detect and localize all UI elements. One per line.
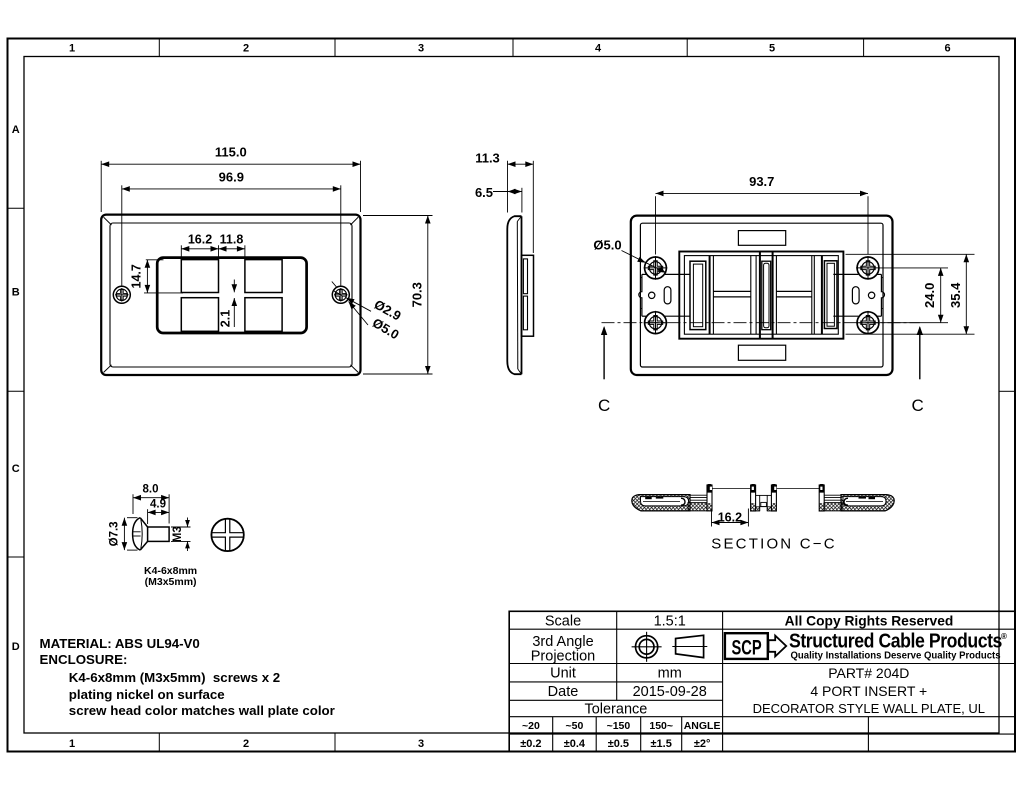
svg-text:®: ® bbox=[1001, 632, 1007, 641]
svg-text:1: 1 bbox=[69, 738, 75, 750]
svg-text:2.1: 2.1 bbox=[218, 310, 232, 327]
svg-text:Date: Date bbox=[548, 684, 579, 700]
svg-text:(M3x5mm): (M3x5mm) bbox=[145, 576, 197, 588]
svg-text:16.2: 16.2 bbox=[718, 511, 742, 525]
svg-text:~150: ~150 bbox=[607, 720, 631, 732]
svg-text:14.7: 14.7 bbox=[129, 264, 143, 288]
svg-text:±0.5: ±0.5 bbox=[608, 738, 629, 750]
svg-text:~20: ~20 bbox=[522, 720, 540, 732]
svg-text:4: 4 bbox=[595, 43, 602, 55]
svg-text:C: C bbox=[911, 396, 923, 415]
svg-text:4 PORT INSERT +: 4 PORT INSERT + bbox=[810, 683, 927, 699]
svg-text:2: 2 bbox=[243, 43, 249, 55]
svg-text:mm: mm bbox=[658, 666, 682, 682]
svg-text:DECORATOR STYLE WALL PLATE, UL: DECORATOR STYLE WALL PLATE, UL bbox=[753, 701, 985, 716]
svg-text:35.4: 35.4 bbox=[948, 282, 963, 308]
svg-text:A: A bbox=[12, 124, 20, 136]
svg-text:Tolerance: Tolerance bbox=[584, 701, 647, 717]
svg-text:B: B bbox=[12, 287, 20, 299]
svg-text:11.8: 11.8 bbox=[220, 232, 244, 246]
svg-text:±1.5: ±1.5 bbox=[651, 738, 672, 750]
svg-text:±0.2: ±0.2 bbox=[520, 738, 541, 750]
svg-text:16.2: 16.2 bbox=[188, 232, 212, 246]
svg-text:plating nickel on surface: plating nickel on surface bbox=[69, 687, 225, 702]
svg-text:3: 3 bbox=[418, 43, 424, 55]
svg-text:C: C bbox=[12, 463, 20, 475]
svg-text:Unit: Unit bbox=[550, 666, 576, 682]
svg-text:SCP: SCP bbox=[731, 636, 761, 659]
svg-text:~50: ~50 bbox=[565, 720, 583, 732]
svg-text:SECTION C−C: SECTION C−C bbox=[711, 536, 836, 553]
svg-text:11.3: 11.3 bbox=[475, 150, 500, 165]
svg-text:93.7: 93.7 bbox=[749, 174, 774, 189]
svg-text:Scale: Scale bbox=[545, 613, 581, 629]
svg-text:96.9: 96.9 bbox=[219, 169, 244, 184]
svg-text:3: 3 bbox=[418, 738, 424, 750]
svg-text:2015-09-28: 2015-09-28 bbox=[633, 684, 707, 700]
svg-text:D: D bbox=[12, 641, 20, 653]
svg-text:screw head color matches wall: screw head color matches wall plate colo… bbox=[69, 703, 335, 718]
svg-text:C: C bbox=[598, 396, 610, 415]
svg-text:5: 5 bbox=[769, 43, 775, 55]
svg-text:Projection: Projection bbox=[531, 648, 595, 664]
svg-text:115.0: 115.0 bbox=[215, 145, 247, 160]
svg-text:6: 6 bbox=[945, 43, 951, 55]
svg-text:Quality Installations Deserve: Quality Installations Deserve Quality Pr… bbox=[791, 650, 1002, 661]
svg-text:M3: M3 bbox=[172, 526, 184, 542]
svg-text:24.0: 24.0 bbox=[922, 283, 937, 308]
svg-text:70.3: 70.3 bbox=[409, 282, 424, 307]
svg-text:Ø7.3: Ø7.3 bbox=[109, 521, 121, 546]
svg-text:150~: 150~ bbox=[649, 720, 673, 732]
svg-text:All Copy Rights Reserved: All Copy Rights Reserved bbox=[785, 614, 954, 629]
svg-text:4.9: 4.9 bbox=[150, 499, 166, 511]
svg-text:±2°: ±2° bbox=[694, 738, 711, 750]
svg-text:PART# 204D: PART# 204D bbox=[828, 665, 909, 681]
svg-text:MATERIAL: ABS UL94-V0: MATERIAL: ABS UL94-V0 bbox=[40, 636, 200, 651]
svg-text:ANGLE: ANGLE bbox=[684, 720, 721, 732]
svg-text:Ø5.0: Ø5.0 bbox=[593, 238, 621, 253]
svg-text:1: 1 bbox=[69, 43, 75, 55]
svg-text:ENCLOSURE:: ENCLOSURE: bbox=[40, 652, 128, 667]
svg-text:1.5:1: 1.5:1 bbox=[654, 613, 686, 629]
svg-text:K4-6x8mm (M3x5mm) screws x 2: K4-6x8mm (M3x5mm) screws x 2 bbox=[69, 670, 280, 685]
svg-text:2: 2 bbox=[243, 738, 249, 750]
svg-text:±0.4: ±0.4 bbox=[564, 738, 586, 750]
svg-text:6.5: 6.5 bbox=[475, 185, 493, 200]
svg-text:8.0: 8.0 bbox=[143, 484, 159, 496]
